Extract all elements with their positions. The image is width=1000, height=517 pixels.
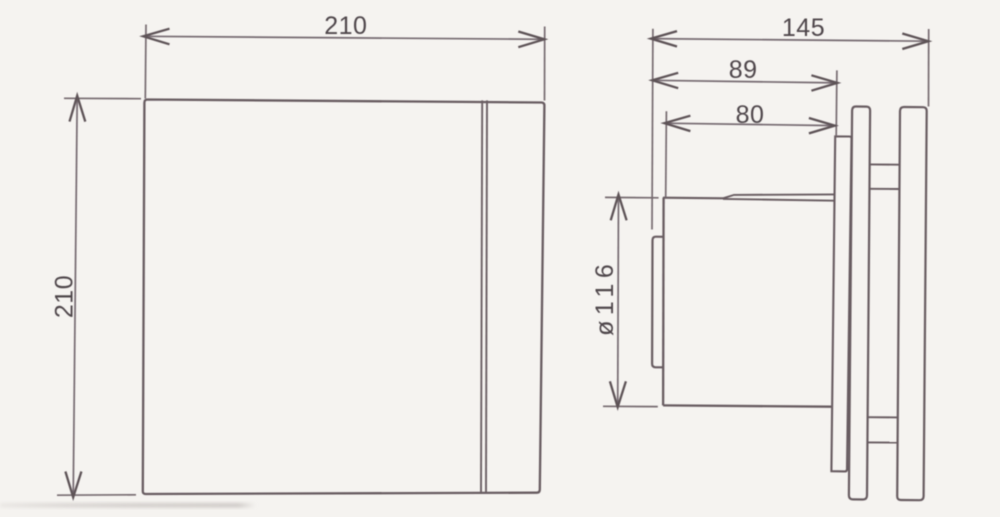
svg-text:89: 89 <box>729 56 758 84</box>
svg-text:ø116: ø116 <box>591 259 619 336</box>
svg-text:80: 80 <box>736 101 765 129</box>
svg-text:210: 210 <box>51 275 79 318</box>
svg-text:145: 145 <box>782 14 825 42</box>
svg-text:210: 210 <box>324 12 367 40</box>
